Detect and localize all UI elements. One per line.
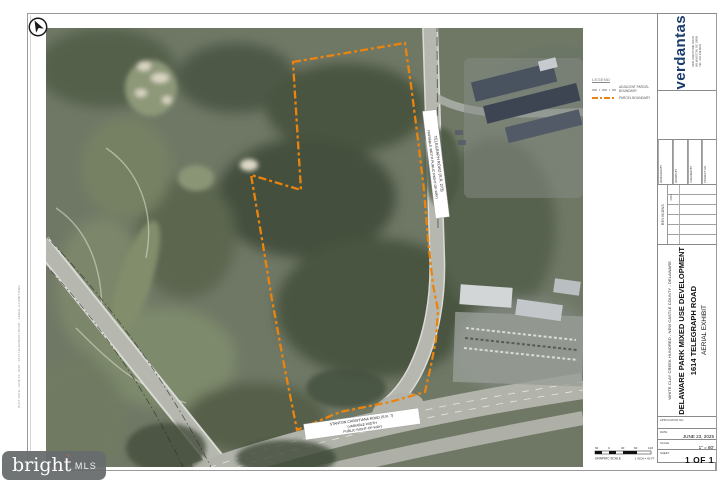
legend-item-label: PARCEL BOUNDARY (619, 97, 650, 101)
bright-wordmark: bright (12, 456, 71, 475)
legend-item-adjacent-parcel: ADJACENT PARCEL BOUNDARY (592, 86, 656, 93)
project-title-line1: DELAWARE PARK MIXED USE DEVELOPMENT (677, 247, 686, 415)
field-value (708, 140, 716, 184)
field-designed-by: DESIGNED BY (658, 140, 672, 184)
sheet-border-inner (30, 15, 31, 467)
field-value (694, 140, 702, 184)
plan-sheet: TELEGRAPH ROAD (S.R. 273) (VARIABLE WIDT… (0, 0, 720, 480)
firm-address: 5400 LIMESTONE ROAD WILMINGTON, DE 19808… (692, 36, 702, 67)
revisions-side-label: REVISIONS (658, 185, 668, 244)
application-no-label: APPLICATION NO. (660, 418, 714, 422)
north-arrow (26, 15, 50, 39)
firm-logo-section: verdantas 5400 LIMESTONE ROAD WILMINGTON… (658, 14, 716, 91)
project-title-section: WHITE CLAY CREEK HUNDRED - NEW CASTLE CO… (658, 245, 716, 417)
application-no-row: APPLICATION NO. (658, 417, 716, 429)
aerial-map: TELEGRAPH ROAD (S.R. 273) (VARIABLE WIDT… (46, 28, 583, 467)
field-label: DRAWN BY (673, 140, 679, 184)
legend-title: LEGEND (592, 77, 610, 83)
scale-note: 1 INCH = 60 FT. (635, 457, 655, 461)
orange-dash-line-icon (592, 96, 616, 100)
revisions-section: REVISIONS DATE (658, 185, 716, 245)
revisions-date-label: DATE (670, 187, 673, 205)
field-value (679, 140, 687, 184)
field-project-no: PROJECT NO. (701, 140, 716, 184)
legend-item-label: ADJACENT PARCEL BOUNDARY (619, 86, 656, 93)
svg-text:60: 60 (634, 446, 638, 450)
date-value: JUNE 23, 2025 (660, 434, 714, 439)
sheet-title: AERIAL EXHIBIT (701, 305, 708, 355)
field-checked-by: CHECKED BY (687, 140, 702, 184)
verdantas-logo: verdantas (672, 15, 689, 89)
scale-caption: GRAPHIC SCALE (595, 457, 621, 461)
mls-label: MLS (75, 461, 97, 471)
sheet-number: 1 OF 1 (660, 455, 714, 465)
svg-text:30: 30 (621, 446, 625, 450)
field-label: CHECKED BY (688, 140, 694, 184)
date-row: DATE JUNE 23, 2025 (658, 429, 716, 440)
plot-stamp-note: PLOT DATE: JUNE 23, 2025 - 1614 TELEGRAP… (17, 285, 21, 408)
scale-row: SCALE 1" = 60' (658, 440, 716, 450)
county-line: WHITE CLAY CREEK HUNDRED - NEW CASTLE CO… (667, 261, 672, 400)
title-block: verdantas 5400 LIMESTONE ROAD WILMINGTON… (657, 13, 716, 463)
seal-area (658, 91, 716, 141)
svg-text:120: 120 (648, 446, 653, 450)
graphic-scale: 60 0 30 60 120 GRAPHIC SCALE 1 INCH = 60… (593, 445, 657, 465)
field-drawn-by: DRAWN BY (672, 140, 687, 184)
svg-text:60: 60 (595, 446, 599, 450)
gray-dash-dot-line-icon (592, 88, 616, 92)
project-title-line2: 1614 TELEGRAPH ROAD (689, 286, 698, 375)
legend: LEGEND ADJACENT PARCEL BOUNDARY PARCEL B… (592, 68, 656, 103)
legend-item-parcel: PARCEL BOUNDARY (592, 96, 656, 100)
bright-star-icon: * (67, 454, 70, 461)
bright-mls-watermark: bright * MLS (2, 451, 106, 480)
field-value (664, 140, 672, 184)
sheet-row: SHEET 1 OF 1 (658, 450, 716, 462)
revisions-rows: DATE (668, 185, 716, 244)
drafting-fields: DESIGNED BY DRAWN BY CHECKED BY PROJECT … (658, 140, 716, 185)
svg-text:0: 0 (608, 446, 610, 450)
revisions-date-divider (679, 185, 680, 244)
